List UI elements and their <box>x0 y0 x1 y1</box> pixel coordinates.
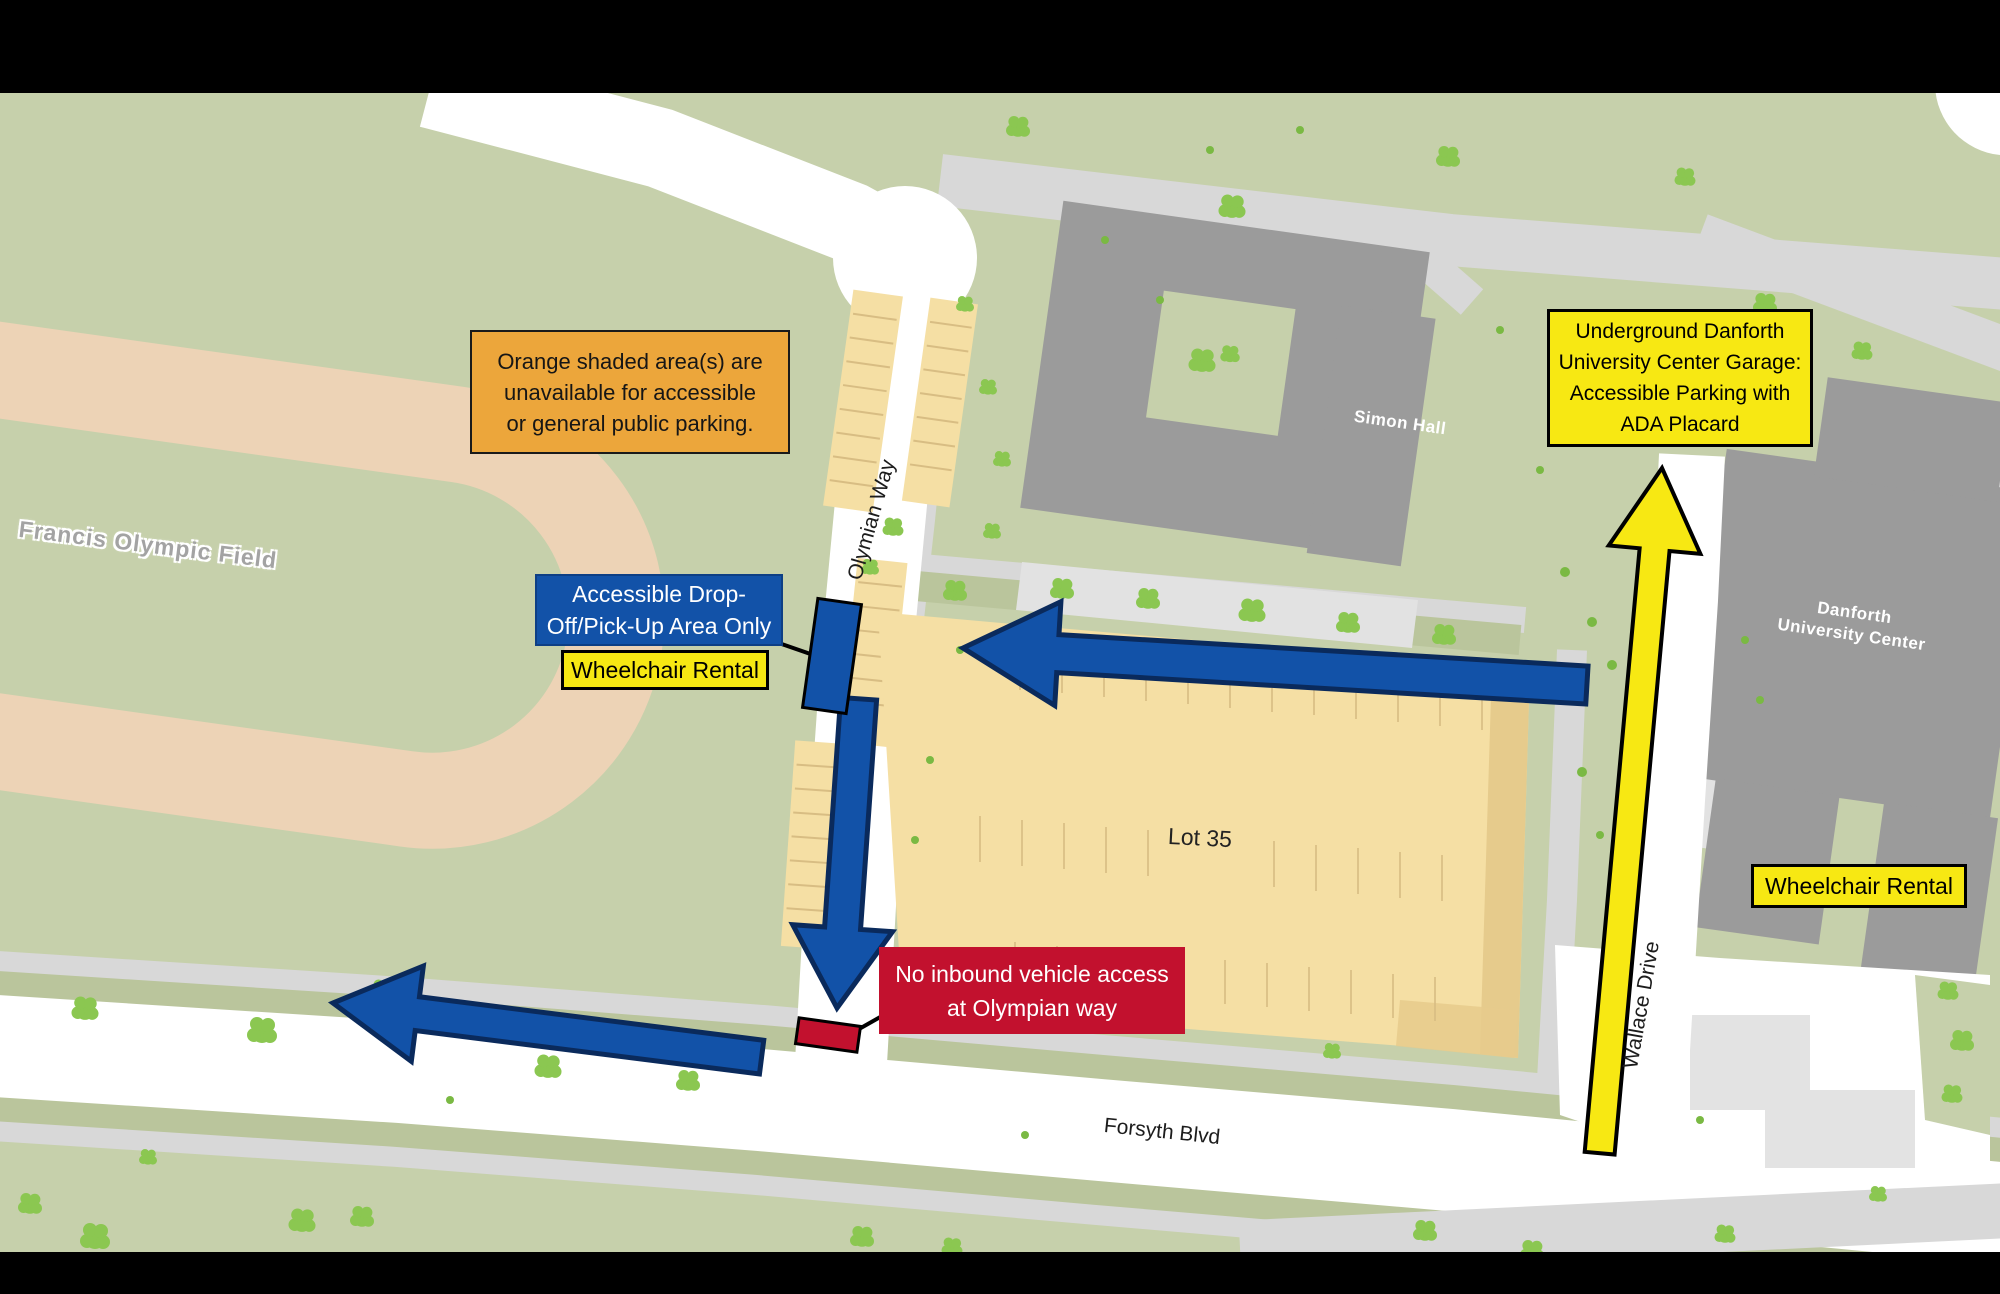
simon-hall-building <box>1020 201 1445 567</box>
map-stage: Francis Olympic Field Simon Hall Danfort… <box>0 0 2000 1294</box>
plaza-patch-2 <box>1765 1090 1915 1168</box>
orange-note-line3: or general public parking. <box>506 408 753 439</box>
wheelchair-rental-west-label: Wheelchair Rental <box>571 657 759 684</box>
campus-map-canvas <box>0 0 2000 1294</box>
dropoff-line2: Off/Pick-Up Area Only <box>547 610 772 642</box>
wheelchair-rental-east-callout: Wheelchair Rental <box>1751 864 1967 908</box>
garage-line1: Underground Danforth <box>1576 316 1785 347</box>
garage-line4: ADA Placard <box>1620 409 1739 440</box>
south-path <box>1240 1210 2000 1248</box>
garage-line3: Accessible Parking with <box>1570 378 1791 409</box>
letterbox-bottom <box>0 1252 2000 1294</box>
orange-note-line2: unavailable for accessible <box>504 377 756 408</box>
wheelchair-rental-west-callout: Wheelchair Rental <box>561 650 769 690</box>
no-inbound-line1: No inbound vehicle access <box>895 957 1169 991</box>
wheelchair-rental-east-label: Wheelchair Rental <box>1765 873 1953 900</box>
no-inbound-callout: No inbound vehicle access at Olympian wa… <box>879 947 1185 1034</box>
dropoff-line1: Accessible Drop- <box>572 578 746 610</box>
garage-line2: University Center Garage: <box>1559 347 1802 378</box>
letterbox-top <box>0 0 2000 93</box>
orange-parking-note: Orange shaded area(s) are unavailable fo… <box>470 330 790 454</box>
no-inbound-line2: at Olympian way <box>947 991 1117 1025</box>
garage-callout: Underground Danforth University Center G… <box>1547 309 1813 447</box>
orange-note-line1: Orange shaded area(s) are <box>497 346 762 377</box>
accessible-dropoff-callout: Accessible Drop- Off/Pick-Up Area Only <box>535 574 783 646</box>
lot-35-label: Lot 35 <box>1167 823 1232 853</box>
